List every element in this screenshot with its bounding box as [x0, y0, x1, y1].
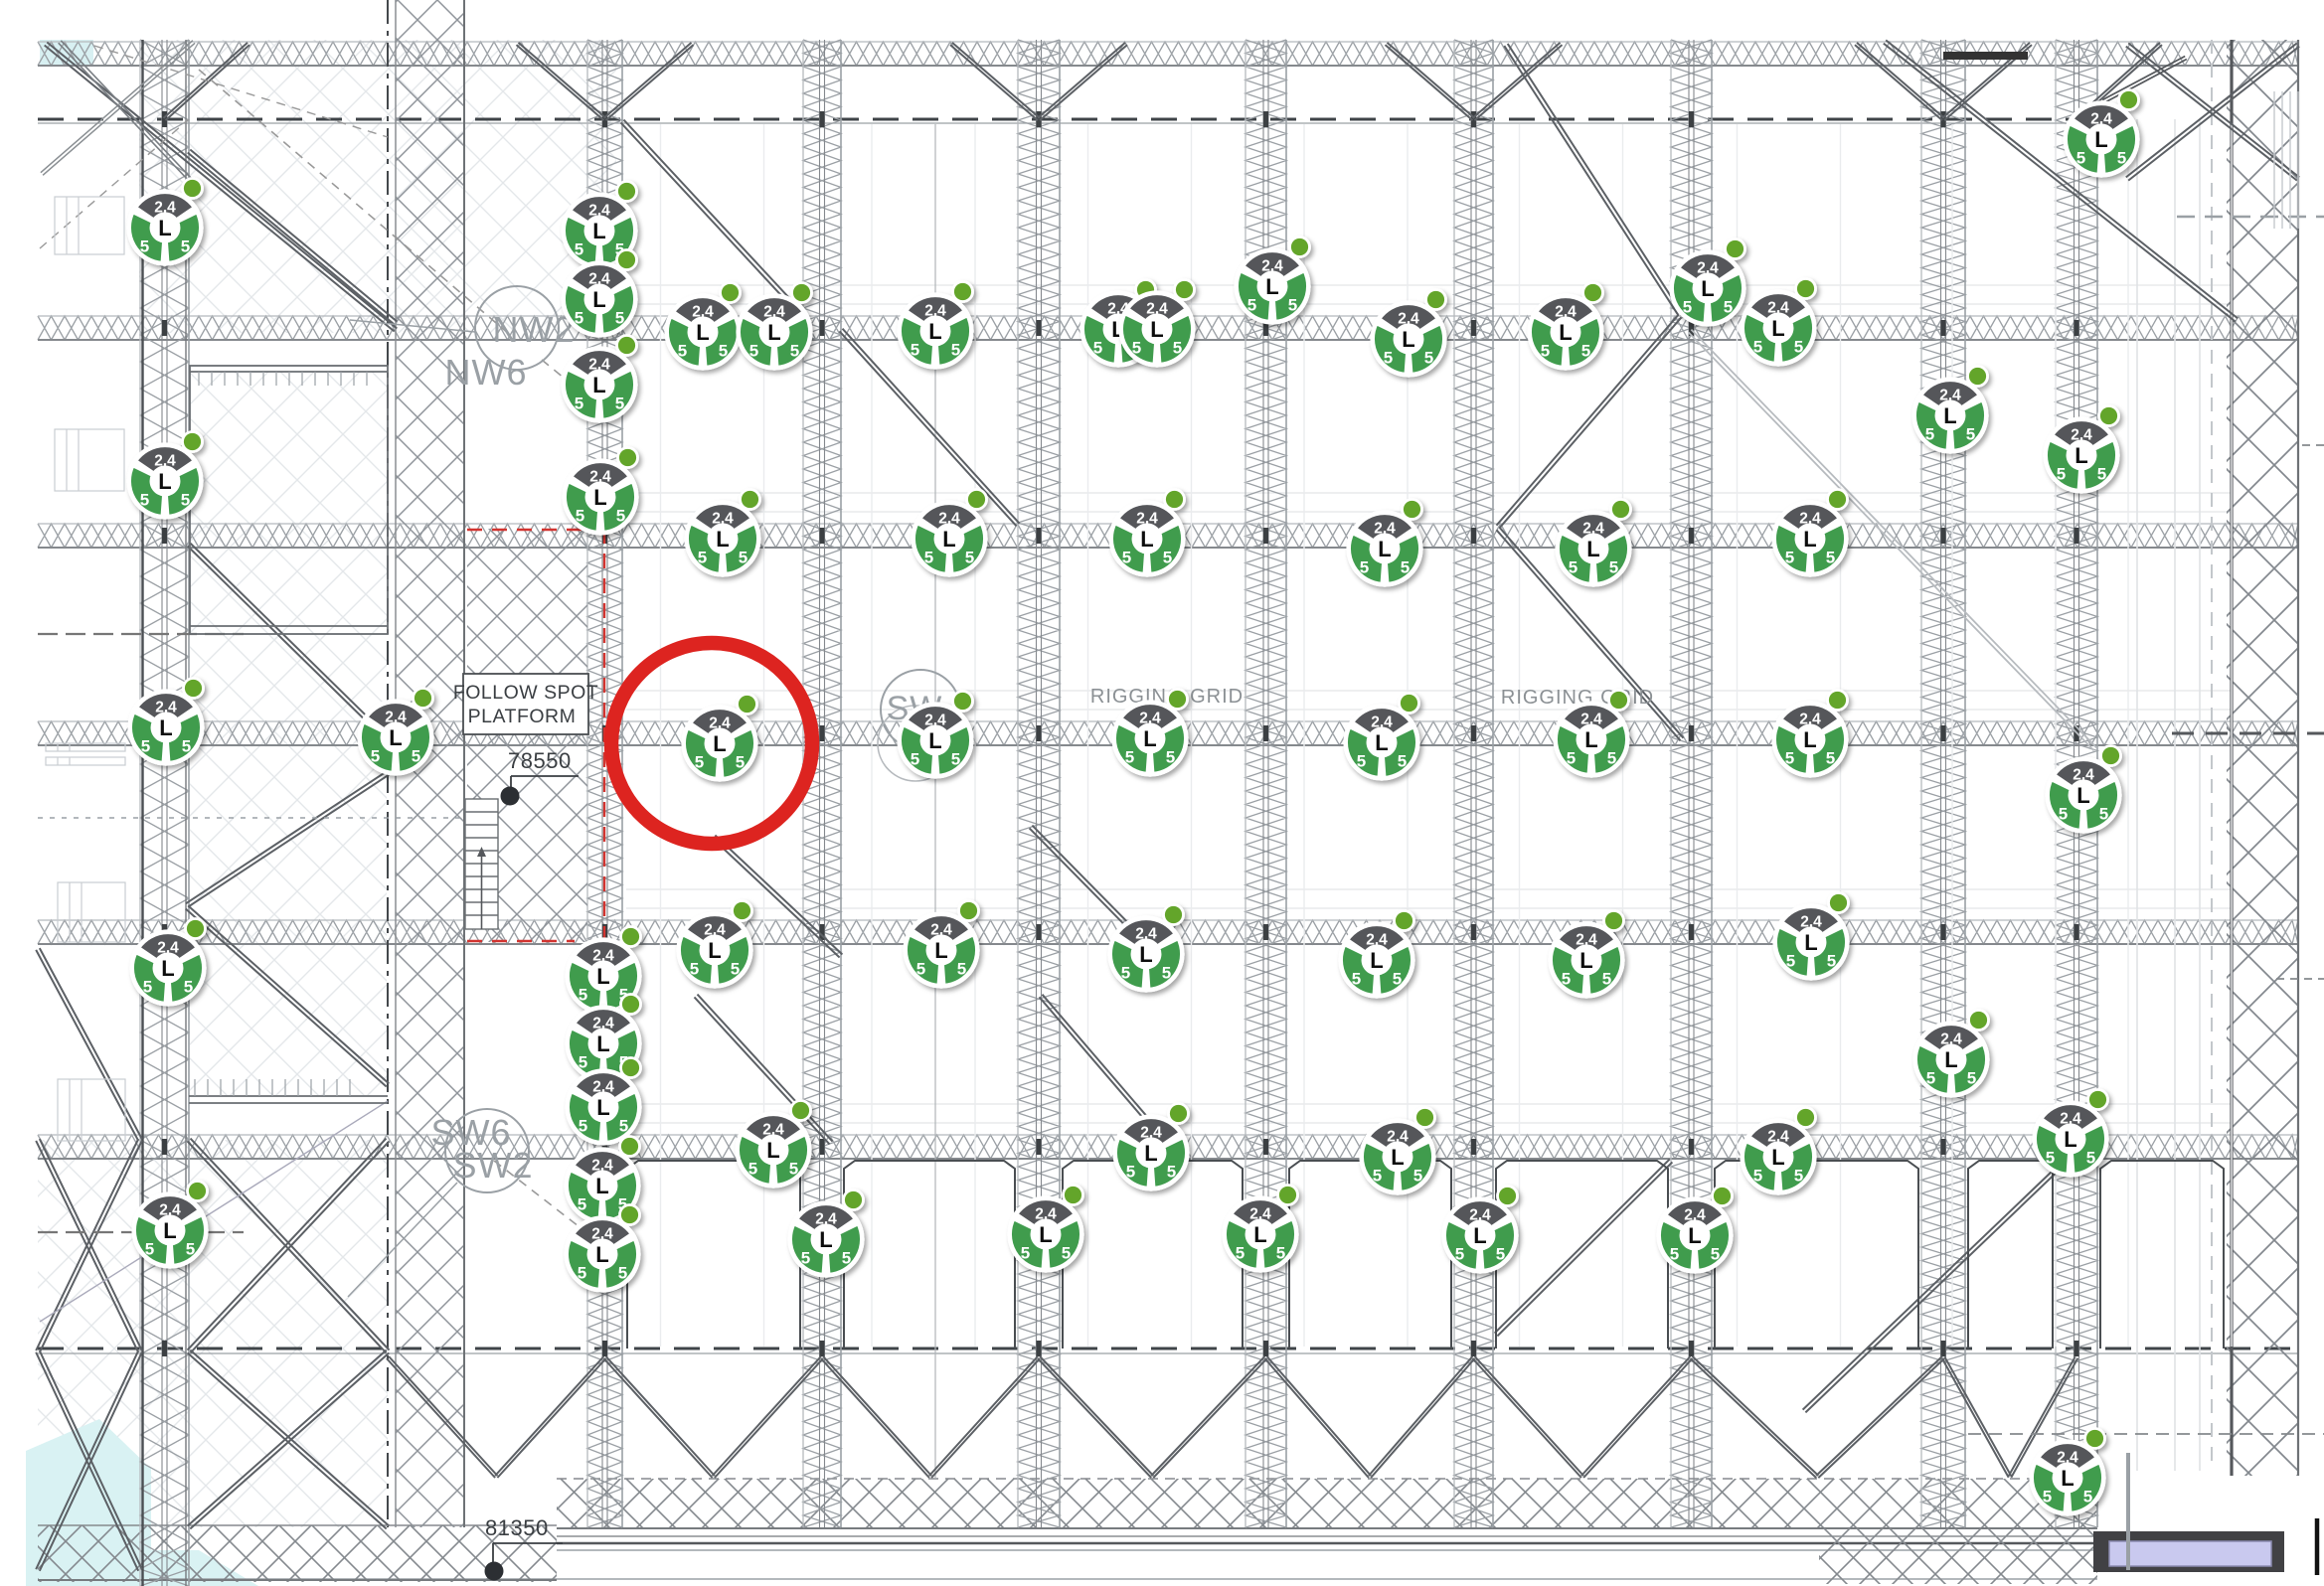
svg-text:L: L: [158, 216, 171, 240]
svg-text:78550: 78550: [508, 748, 572, 773]
svg-text:5: 5: [1966, 425, 1975, 444]
svg-text:2.4: 2.4: [1366, 932, 1388, 949]
svg-text:2.4: 2.4: [1800, 914, 1822, 931]
svg-text:L: L: [1375, 730, 1388, 755]
svg-text:5: 5: [1163, 549, 1172, 567]
svg-text:L: L: [934, 938, 947, 963]
svg-text:2.4: 2.4: [1146, 301, 1168, 318]
svg-text:L: L: [2075, 443, 2087, 468]
svg-text:2.4: 2.4: [712, 511, 734, 528]
svg-text:5: 5: [145, 1240, 154, 1259]
svg-text:5: 5: [2097, 465, 2106, 484]
svg-text:5: 5: [615, 395, 624, 413]
svg-text:5: 5: [698, 549, 707, 567]
svg-text:5: 5: [371, 747, 380, 766]
svg-text:5: 5: [951, 750, 960, 769]
svg-text:2.4: 2.4: [763, 304, 785, 321]
svg-text:L: L: [2064, 1127, 2076, 1152]
svg-text:5: 5: [1602, 970, 1611, 989]
svg-text:2.4: 2.4: [2073, 767, 2094, 784]
svg-text:L: L: [1804, 930, 1817, 955]
svg-text:5: 5: [1167, 1163, 1176, 1182]
svg-text:5: 5: [1122, 549, 1131, 567]
svg-text:SW2: SW2: [452, 1145, 533, 1186]
svg-text:2.4: 2.4: [924, 303, 946, 320]
svg-text:5: 5: [1785, 549, 1794, 567]
svg-text:2.4: 2.4: [1576, 932, 1597, 949]
svg-text:5: 5: [2099, 805, 2108, 824]
svg-text:2.4: 2.4: [1767, 1129, 1789, 1146]
svg-text:2.4: 2.4: [589, 469, 611, 486]
svg-text:5: 5: [1967, 1069, 1976, 1088]
svg-text:2.4: 2.4: [692, 304, 714, 321]
svg-text:L: L: [1039, 1222, 1052, 1247]
svg-text:2.4: 2.4: [1939, 388, 1961, 404]
svg-text:2.4: 2.4: [592, 1079, 614, 1096]
svg-text:5: 5: [1786, 952, 1795, 971]
svg-text:2.4: 2.4: [1136, 511, 1158, 528]
svg-text:5: 5: [1827, 952, 1836, 971]
svg-text:2.4: 2.4: [1261, 258, 1283, 275]
svg-text:5: 5: [1609, 558, 1618, 577]
svg-text:FOLLOW SPOT: FOLLOW SPOT: [453, 682, 598, 704]
svg-text:5: 5: [1670, 1245, 1679, 1264]
svg-text:5: 5: [1125, 748, 1134, 767]
svg-text:L: L: [1584, 727, 1597, 752]
svg-text:81350: 81350: [485, 1515, 549, 1540]
svg-text:L: L: [1265, 274, 1278, 299]
svg-text:5: 5: [1926, 1069, 1935, 1088]
svg-text:5: 5: [575, 240, 583, 259]
svg-text:5: 5: [1162, 964, 1171, 983]
svg-text:5: 5: [1247, 296, 1256, 315]
svg-text:5: 5: [140, 238, 149, 256]
svg-text:2.4: 2.4: [1398, 311, 1419, 328]
svg-text:5: 5: [1569, 558, 1577, 577]
svg-text:L: L: [2076, 783, 2089, 808]
svg-text:L: L: [819, 1227, 832, 1252]
svg-text:5: 5: [1357, 752, 1366, 771]
svg-text:5: 5: [1562, 970, 1571, 989]
svg-text:L: L: [2094, 127, 2107, 152]
svg-text:L: L: [596, 1095, 609, 1120]
svg-text:5: 5: [801, 1249, 810, 1268]
svg-text:5: 5: [1455, 1245, 1464, 1264]
svg-text:L: L: [159, 715, 172, 740]
svg-text:5: 5: [1373, 1167, 1382, 1186]
svg-text:2.4: 2.4: [2060, 1111, 2081, 1128]
svg-text:L: L: [389, 725, 402, 750]
svg-text:L: L: [1943, 403, 1956, 428]
svg-text:2.4: 2.4: [1374, 521, 1396, 538]
svg-text:PLATFORM: PLATFORM: [468, 706, 577, 727]
svg-text:5: 5: [186, 1240, 195, 1259]
svg-text:5: 5: [575, 395, 583, 413]
svg-text:2.4: 2.4: [588, 357, 610, 374]
svg-text:5: 5: [141, 737, 150, 756]
svg-text:5: 5: [2083, 1488, 2092, 1507]
svg-text:5: 5: [576, 507, 584, 526]
svg-text:2.4: 2.4: [2071, 427, 2092, 444]
svg-text:5: 5: [1384, 349, 1393, 368]
svg-text:5: 5: [911, 750, 919, 769]
svg-text:L: L: [1701, 276, 1714, 301]
svg-text:5: 5: [1567, 749, 1576, 768]
svg-text:L: L: [592, 287, 605, 312]
svg-text:L: L: [1803, 727, 1816, 752]
svg-text:L: L: [1771, 1145, 1784, 1170]
svg-text:5: 5: [412, 747, 420, 766]
svg-text:2.4: 2.4: [1697, 260, 1719, 277]
svg-text:5: 5: [2076, 149, 2085, 168]
svg-text:2.4: 2.4: [1684, 1207, 1706, 1224]
svg-text:5: 5: [790, 342, 799, 361]
svg-text:5: 5: [1785, 749, 1794, 768]
svg-text:2.4: 2.4: [709, 715, 731, 732]
svg-text:5: 5: [579, 1053, 587, 1072]
svg-text:5: 5: [1541, 342, 1550, 361]
svg-text:2.4: 2.4: [938, 511, 960, 528]
svg-text:5: 5: [1794, 1167, 1803, 1186]
svg-text:2.4: 2.4: [762, 1122, 784, 1139]
svg-text:L: L: [696, 320, 709, 345]
svg-text:5: 5: [1166, 748, 1175, 767]
svg-text:L: L: [1586, 537, 1599, 561]
svg-text:L: L: [1370, 948, 1383, 973]
svg-text:5: 5: [1121, 964, 1130, 983]
svg-text:5: 5: [719, 342, 728, 361]
svg-text:L: L: [163, 1218, 176, 1243]
svg-text:2.4: 2.4: [157, 940, 179, 957]
svg-text:2.4: 2.4: [1371, 714, 1393, 731]
svg-text:2.4: 2.4: [2090, 111, 2112, 128]
svg-text:5: 5: [2043, 1488, 2052, 1507]
svg-text:2.4: 2.4: [591, 1158, 613, 1175]
svg-text:5: 5: [1126, 1163, 1135, 1182]
svg-text:2.4: 2.4: [1249, 1206, 1271, 1223]
svg-text:L: L: [708, 938, 721, 963]
svg-text:5: 5: [916, 960, 925, 979]
svg-text:5: 5: [578, 1195, 586, 1214]
svg-text:5: 5: [616, 507, 625, 526]
svg-text:L: L: [2061, 1466, 2074, 1491]
svg-text:L: L: [1150, 317, 1163, 342]
svg-text:L: L: [713, 731, 726, 756]
svg-text:L: L: [1402, 327, 1414, 352]
svg-text:5: 5: [1753, 1167, 1762, 1186]
svg-text:5: 5: [1683, 298, 1692, 317]
svg-text:5: 5: [1236, 1244, 1245, 1263]
svg-text:5: 5: [1607, 749, 1616, 768]
svg-text:L: L: [1391, 1145, 1404, 1170]
svg-text:2.4: 2.4: [588, 271, 610, 288]
svg-text:2.4: 2.4: [1580, 712, 1602, 728]
svg-text:5: 5: [1352, 970, 1361, 989]
svg-text:2.4: 2.4: [154, 453, 176, 470]
svg-text:L: L: [1473, 1223, 1486, 1248]
svg-text:2.4: 2.4: [704, 922, 726, 939]
svg-text:L: L: [1688, 1223, 1701, 1248]
svg-text:2.4: 2.4: [1387, 1129, 1409, 1146]
svg-text:5: 5: [1424, 349, 1433, 368]
svg-text:NW6: NW6: [445, 352, 528, 393]
svg-text:L: L: [1771, 316, 1784, 341]
svg-text:5: 5: [575, 309, 583, 328]
svg-text:5: 5: [1724, 298, 1733, 317]
svg-text:L: L: [595, 1242, 608, 1267]
svg-text:5: 5: [2117, 149, 2126, 168]
svg-text:5: 5: [579, 986, 587, 1005]
svg-text:L: L: [595, 1174, 608, 1198]
svg-text:2.4: 2.4: [930, 922, 952, 939]
svg-text:5: 5: [957, 960, 966, 979]
svg-text:5: 5: [2086, 1149, 2095, 1168]
svg-text:2.4: 2.4: [592, 948, 614, 965]
svg-text:L: L: [1143, 726, 1156, 751]
svg-text:2.4: 2.4: [1940, 1031, 1962, 1048]
svg-text:5: 5: [579, 1117, 587, 1136]
svg-text:2.4: 2.4: [591, 1226, 613, 1243]
svg-text:5: 5: [911, 341, 919, 360]
svg-text:5: 5: [1398, 752, 1407, 771]
svg-text:5: 5: [143, 978, 152, 997]
svg-text:2.4: 2.4: [1767, 300, 1789, 317]
svg-text:5: 5: [1360, 558, 1369, 577]
svg-text:5: 5: [2057, 465, 2066, 484]
svg-text:L: L: [1803, 527, 1816, 552]
svg-text:5: 5: [1401, 558, 1410, 577]
svg-text:2.4: 2.4: [2057, 1450, 2078, 1467]
svg-text:5: 5: [1276, 1244, 1285, 1263]
svg-text:5: 5: [578, 1264, 586, 1283]
svg-text:5: 5: [1826, 749, 1835, 768]
svg-text:L: L: [1253, 1222, 1266, 1247]
svg-text:L: L: [716, 527, 729, 552]
svg-text:5: 5: [749, 342, 758, 361]
svg-text:2.4: 2.4: [1035, 1206, 1057, 1223]
svg-text:2.4: 2.4: [1140, 1125, 1162, 1142]
svg-text:L: L: [928, 319, 941, 344]
svg-text:L: L: [592, 219, 605, 243]
svg-text:5: 5: [1173, 339, 1182, 358]
svg-text:5: 5: [1062, 1244, 1071, 1263]
svg-text:L: L: [596, 964, 609, 989]
svg-text:5: 5: [2046, 1149, 2055, 1168]
svg-text:5: 5: [1288, 296, 1297, 315]
svg-text:2.4: 2.4: [815, 1211, 837, 1228]
svg-text:L: L: [1579, 948, 1592, 973]
svg-text:L: L: [1144, 1141, 1157, 1166]
svg-text:L: L: [942, 527, 955, 552]
svg-text:5: 5: [1132, 339, 1141, 358]
svg-text:5: 5: [748, 1160, 757, 1179]
svg-text:2.4: 2.4: [592, 1016, 614, 1032]
svg-text:L: L: [1139, 942, 1152, 967]
svg-text:L: L: [158, 469, 171, 494]
svg-text:L: L: [1378, 537, 1391, 561]
svg-text:L: L: [767, 320, 780, 345]
svg-text:5: 5: [182, 737, 191, 756]
svg-text:5: 5: [1711, 1245, 1720, 1264]
svg-text:2.4: 2.4: [1799, 712, 1821, 728]
svg-text:2.4: 2.4: [1469, 1207, 1491, 1224]
svg-text:5: 5: [619, 1117, 628, 1136]
svg-text:5: 5: [736, 753, 745, 772]
svg-text:L: L: [1140, 527, 1153, 552]
svg-text:5: 5: [1925, 425, 1934, 444]
svg-text:2.4: 2.4: [1582, 521, 1604, 538]
svg-text:2.4: 2.4: [1799, 511, 1821, 528]
svg-text:2.4: 2.4: [1555, 304, 1577, 321]
svg-text:5: 5: [140, 491, 149, 510]
svg-text:L: L: [596, 1031, 609, 1056]
svg-text:2.4: 2.4: [154, 200, 176, 217]
svg-text:5: 5: [1393, 970, 1402, 989]
svg-text:2.4: 2.4: [588, 203, 610, 220]
svg-text:5: 5: [924, 549, 933, 567]
svg-text:L: L: [593, 485, 606, 510]
svg-text:5: 5: [842, 1249, 851, 1268]
svg-text:5: 5: [1496, 1245, 1505, 1264]
svg-text:2.4: 2.4: [1135, 926, 1157, 943]
svg-text:5: 5: [690, 960, 699, 979]
svg-text:5: 5: [181, 491, 190, 510]
svg-text:2.4: 2.4: [159, 1202, 181, 1219]
svg-text:5: 5: [739, 549, 747, 567]
svg-text:L: L: [1944, 1047, 1957, 1072]
svg-text:5: 5: [1581, 342, 1590, 361]
svg-text:2.4: 2.4: [1139, 711, 1161, 727]
svg-text:2.4: 2.4: [924, 713, 946, 729]
svg-text:5: 5: [731, 960, 740, 979]
svg-text:5: 5: [695, 753, 704, 772]
svg-text:5: 5: [615, 309, 624, 328]
svg-text:5: 5: [1413, 1167, 1422, 1186]
svg-text:L: L: [1559, 320, 1572, 345]
svg-text:5: 5: [2059, 805, 2068, 824]
svg-text:5: 5: [951, 341, 960, 360]
svg-text:5: 5: [789, 1160, 798, 1179]
svg-text:5: 5: [678, 342, 687, 361]
svg-text:L: L: [161, 956, 174, 981]
svg-text:2.4: 2.4: [155, 700, 177, 716]
svg-text:5: 5: [1826, 549, 1835, 567]
svg-text:L: L: [592, 373, 605, 397]
svg-text:L: L: [928, 728, 941, 753]
svg-text:5: 5: [1794, 338, 1803, 357]
svg-text:2.4: 2.4: [385, 710, 407, 726]
svg-text:5: 5: [1753, 338, 1762, 357]
svg-text:5: 5: [1021, 1244, 1030, 1263]
svg-text:5: 5: [181, 238, 190, 256]
svg-text:5: 5: [1093, 339, 1102, 358]
svg-text:5: 5: [184, 978, 193, 997]
svg-text:NW2: NW2: [493, 309, 576, 350]
svg-text:5: 5: [618, 1264, 627, 1283]
svg-text:L: L: [766, 1138, 779, 1163]
svg-text:5: 5: [965, 549, 974, 567]
